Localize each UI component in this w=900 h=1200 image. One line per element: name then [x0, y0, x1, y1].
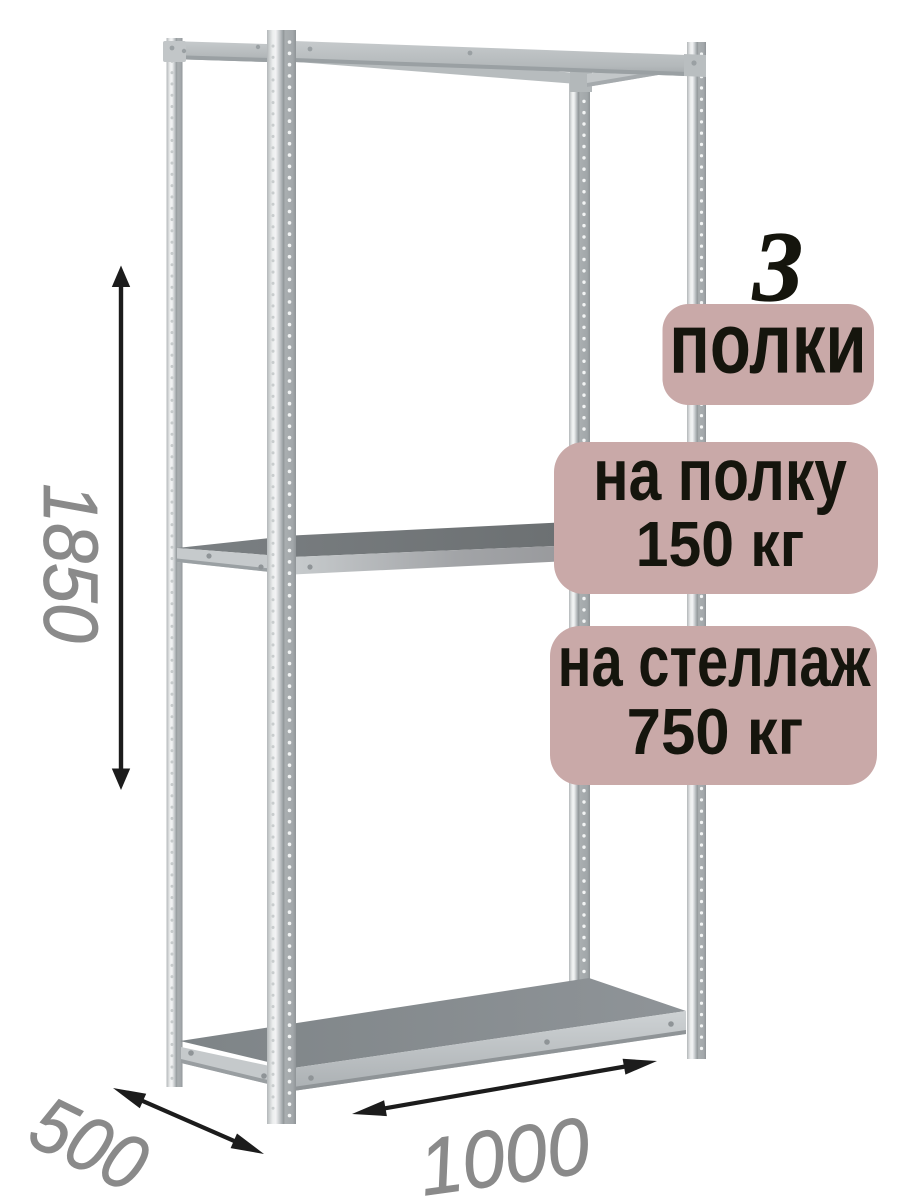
svg-text:полки: полки — [669, 297, 866, 391]
svg-text:150 кг: 150 кг — [636, 509, 805, 581]
svg-text:на стеллаж: на стеллаж — [558, 622, 871, 702]
svg-text:750 кг: 750 кг — [627, 697, 804, 769]
svg-text:на полку: на полку — [593, 435, 847, 517]
svg-text:1850: 1850 — [27, 483, 113, 642]
